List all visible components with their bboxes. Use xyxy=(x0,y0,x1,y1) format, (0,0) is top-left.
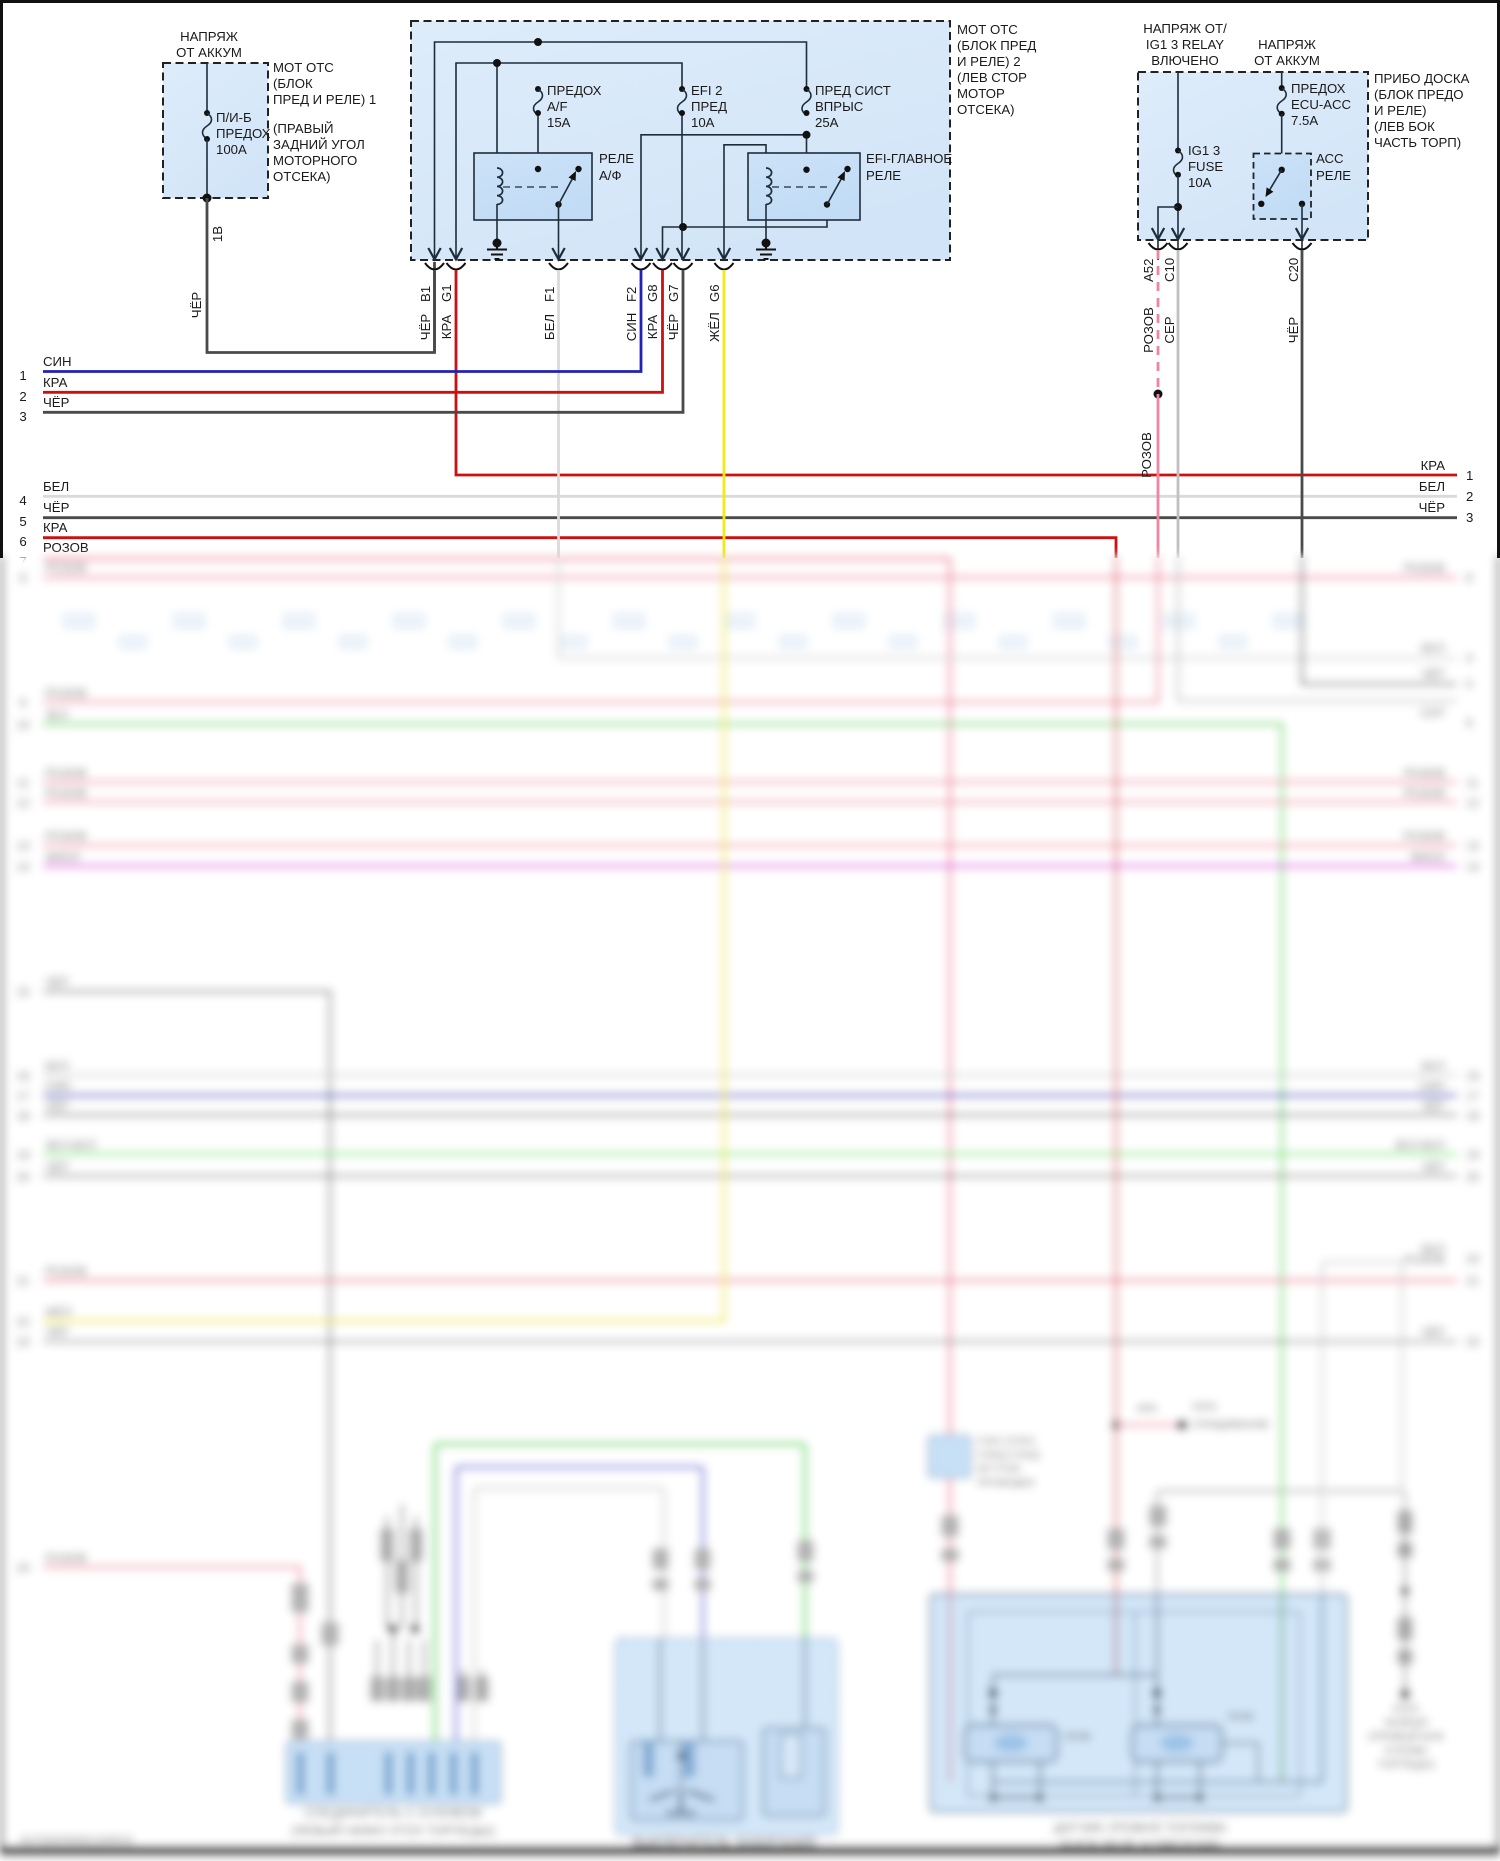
svg-text:ТОРПЕДО): ТОРПЕДО) xyxy=(1377,1759,1434,1771)
svg-text:КРА: КРА xyxy=(43,520,68,535)
svg-text:5: 5 xyxy=(1466,677,1473,691)
svg-text:23: 23 xyxy=(1466,1335,1480,1349)
svg-text:БЕЛ: БЕЛ xyxy=(1419,479,1445,494)
svg-text:10A: 10A xyxy=(1188,175,1212,190)
svg-text:НАПРЯЖ ОТ/: НАПРЯЖ ОТ/ xyxy=(1143,21,1227,36)
svg-text:НАПРЯЖ: НАПРЯЖ xyxy=(1258,37,1316,52)
svg-text:СИН: СИН xyxy=(1419,1079,1445,1093)
svg-text:РОЗОВ: РОЗОВ xyxy=(1403,561,1445,575)
svg-text:ЧАСТЬ ТОРП): ЧАСТЬ ТОРП) xyxy=(1374,135,1461,150)
svg-text:A/F: A/F xyxy=(547,99,568,114)
svg-text:ЧЁР: ЧЁР xyxy=(1419,500,1446,515)
svg-text:ОТ АККУМ: ОТ АККУМ xyxy=(1254,53,1320,68)
svg-text:12: 12 xyxy=(16,796,30,810)
svg-text:6: 6 xyxy=(1466,716,1473,730)
svg-text:(ЛЕВ БОК: (ЛЕВ БОК xyxy=(1374,119,1435,134)
svg-text:ПРЕДОХ: ПРЕДОХ xyxy=(1291,81,1346,96)
svg-text:ЧЁР: ЧЁР xyxy=(45,1325,69,1339)
svg-text:ЧЁР: ЧЁР xyxy=(189,292,204,319)
svg-text:И РЕЛЕ) 2: И РЕЛЕ) 2 xyxy=(957,54,1021,69)
svg-text:9: 9 xyxy=(20,696,27,710)
svg-text:ЗАЗЕМЛ: ЗАЗЕМЛ xyxy=(1384,1717,1428,1729)
svg-text:РОЗОВ: РОЗОВ xyxy=(43,540,89,555)
svg-text:ЖЁЛ: ЖЁЛ xyxy=(707,312,722,342)
svg-text:C10: C10 xyxy=(1162,258,1177,282)
svg-text:4: 4 xyxy=(19,493,26,508)
svg-text:IG1 3 RELAY: IG1 3 RELAY xyxy=(1146,37,1224,52)
svg-text:FUSE: FUSE xyxy=(1188,159,1223,174)
svg-text:ЗАДНИЙ УГОЛ: ЗАДНИЙ УГОЛ xyxy=(273,137,365,152)
svg-text:ПРЕД И РЕЛЕ) 1: ПРЕД И РЕЛЕ) 1 xyxy=(273,92,376,107)
svg-text:ПРЕДОХ: ПРЕДОХ xyxy=(216,126,271,141)
svg-text:14: 14 xyxy=(1466,860,1480,874)
svg-text:(БЛОК РЕЛЕ И ПРЕДОХР): (БЛОК РЕЛЕ И ПРЕДОХР) xyxy=(1060,1837,1221,1852)
svg-text:23: 23 xyxy=(16,1335,30,1349)
svg-text:A52: A52 xyxy=(1141,259,1156,282)
svg-text:РЕЛЕ: РЕЛЕ xyxy=(1228,1712,1255,1723)
svg-text:7.5A: 7.5A xyxy=(1291,113,1318,128)
svg-text:КРА: КРА xyxy=(1137,1403,1158,1415)
svg-text:1: 1 xyxy=(1466,468,1473,483)
svg-text:ЗЕЛ: ЗЕЛ xyxy=(45,708,68,722)
svg-text:ПРИБО ДОСКА: ПРИБО ДОСКА xyxy=(1374,71,1470,86)
svg-text:1: 1 xyxy=(19,368,26,383)
svg-text:ЧЁР: ЧЁР xyxy=(45,975,69,989)
svg-text:ЧЁР: ЧЁР xyxy=(1421,667,1445,681)
svg-text:ПРЕД: ПРЕД xyxy=(691,99,727,114)
svg-text:21: 21 xyxy=(16,1274,30,1288)
svg-text:КУЗОВА: КУЗОВА xyxy=(1385,1745,1428,1757)
svg-text:ЧЁР: ЧЁР xyxy=(45,1160,69,1174)
svg-text:C20: C20 xyxy=(1286,258,1301,282)
svg-text:ВЛЮЧЕНО: ВЛЮЧЕНО xyxy=(1151,53,1219,68)
svg-text:ЧЁР: ЧЁР xyxy=(1421,1160,1445,1174)
svg-text:РОЗОВ: РОЗОВ xyxy=(45,1264,87,1278)
svg-text:22: 22 xyxy=(16,1315,30,1329)
svg-text:21: 21 xyxy=(1466,1274,1480,1288)
svg-text:2: 2 xyxy=(19,389,26,404)
svg-text:РОЗОВ: РОЗОВ xyxy=(1403,786,1445,800)
svg-text:G201: G201 xyxy=(1393,1703,1420,1715)
svg-text:24: 24 xyxy=(1466,1252,1480,1266)
svg-text:18: 18 xyxy=(1466,1109,1480,1123)
svg-text:ОТСЕКА): ОТСЕКА) xyxy=(957,102,1015,117)
svg-text:8: 8 xyxy=(20,571,27,585)
svg-text:А/Ф: А/Ф xyxy=(599,168,622,183)
svg-text:БЕЛ: БЕЛ xyxy=(45,1059,69,1073)
svg-text:ЧЁР: ЧЁР xyxy=(1421,1325,1445,1339)
svg-text:1B: 1B xyxy=(210,226,225,242)
svg-text:ВЫКЛЮЧАТЕЛЬ ЗАЖИГАНИЯ: ВЫКЛЮЧАТЕЛЬ ЗАЖИГАНИЯ xyxy=(632,1834,815,1849)
svg-text:РОЗОВ: РОЗОВ xyxy=(45,1551,87,1565)
svg-text:G7: G7 xyxy=(666,284,681,302)
svg-text:ДАТЧИК УРОВНЯ ТОПЛИВА: ДАТЧИК УРОВНЯ ТОПЛИВА xyxy=(1053,1820,1226,1835)
svg-text:19: 19 xyxy=(1466,1148,1480,1162)
svg-text:(БЛОК: (БЛОК xyxy=(273,76,313,91)
svg-text:РОЗОВ: РОЗОВ xyxy=(1139,432,1154,478)
svg-text:16: 16 xyxy=(16,1069,30,1083)
svg-text:F1: F1 xyxy=(542,287,557,302)
svg-text:РОЗОВ: РОЗОВ xyxy=(45,561,87,575)
svg-text:МОТ ОТС: МОТ ОТС xyxy=(957,22,1018,37)
svg-text:РЕЛЕ: РЕЛЕ xyxy=(866,168,901,183)
svg-text:ЖГУТОВ: ЖГУТОВ xyxy=(977,1463,1020,1475)
svg-text:ЗЕЛ-БЕЛ: ЗЕЛ-БЕЛ xyxy=(1394,1138,1445,1152)
svg-text:РОЗОВ: РОЗОВ xyxy=(1141,307,1156,353)
svg-text:2: 2 xyxy=(1466,489,1473,504)
svg-text:3: 3 xyxy=(19,409,26,424)
svg-text:11: 11 xyxy=(17,776,30,790)
svg-text:НАПРЯЖ: НАПРЯЖ xyxy=(180,29,238,44)
svg-text:КРА: КРА xyxy=(439,315,454,340)
svg-text:БЕЛ: БЕЛ xyxy=(1421,1242,1445,1256)
svg-text:ЧЁР: ЧЁР xyxy=(43,395,70,410)
svg-text:ОТ АККУМ: ОТ АККУМ xyxy=(176,45,242,60)
svg-text:20: 20 xyxy=(1466,1170,1480,1184)
svg-text:РЕЛЕ: РЕЛЕ xyxy=(1065,1732,1092,1743)
svg-text:18: 18 xyxy=(16,1109,30,1123)
svg-text:КРА: КРА xyxy=(1421,458,1446,473)
svg-text:20: 20 xyxy=(16,1170,30,1184)
svg-text:ЧЁР: ЧЁР xyxy=(43,500,70,515)
svg-text:15A: 15A xyxy=(547,115,571,130)
svg-text:G1: G1 xyxy=(439,284,454,302)
svg-text:10: 10 xyxy=(16,718,30,732)
svg-text:БЕЛ: БЕЛ xyxy=(43,479,69,494)
svg-text:РОЗОВ: РОЗОВ xyxy=(45,829,87,843)
svg-text:14: 14 xyxy=(16,860,30,874)
svg-text:10A: 10A xyxy=(691,115,715,130)
svg-text:ПРЕД СИСТ: ПРЕД СИСТ xyxy=(815,83,891,98)
svg-text:100А: 100А xyxy=(216,142,247,157)
svg-text:РОЗОВ: РОЗОВ xyxy=(45,766,87,780)
svg-text:КРА: КРА xyxy=(645,315,660,340)
svg-text:11: 11 xyxy=(1466,776,1479,790)
svg-text:3: 3 xyxy=(1466,510,1473,525)
svg-text:БЕЛ: БЕЛ xyxy=(542,314,557,340)
svg-text:СИН: СИН xyxy=(624,313,639,342)
svg-text:AUTODATA0001234RUS: AUTODATA0001234RUS xyxy=(20,1835,133,1846)
svg-text:IG1 3: IG1 3 xyxy=(1188,143,1220,158)
svg-text:(ЛЕВЫЙ НИЖН УГОЛ ТОРПЕДЫ): (ЛЕВЫЙ НИЖН УГОЛ ТОРПЕДЫ) xyxy=(291,1823,495,1838)
svg-text:КРА: КРА xyxy=(43,375,68,390)
svg-text:ЧЁР: ЧЁР xyxy=(666,314,681,341)
svg-text:СИН: СИН xyxy=(45,1079,71,1093)
svg-text:МОТОР: МОТОР xyxy=(957,86,1005,101)
svg-text:(ПРАВЫЙ БОК: (ПРАВЫЙ БОК xyxy=(1368,1730,1444,1743)
svg-text:ECU-ACC: ECU-ACC xyxy=(1291,97,1352,112)
svg-text:5: 5 xyxy=(19,514,26,529)
svg-text:ЖЁЛ: ЖЁЛ xyxy=(45,1305,72,1319)
svg-text:АСС: АСС xyxy=(1316,151,1344,166)
svg-text:(БЛОК ПРЕДО: (БЛОК ПРЕДО xyxy=(1374,87,1464,102)
svg-text:БЕЛ: БЕЛ xyxy=(1421,641,1445,655)
svg-text:ЧЁР: ЧЁР xyxy=(418,314,433,341)
svg-text:S201: S201 xyxy=(1192,1401,1218,1413)
svg-text:ФИОЛ: ФИОЛ xyxy=(1410,850,1445,864)
svg-text:СОЕДИНИТЕЛЬ С КУЗОВОМ: СОЕДИНИТЕЛЬ С КУЗОВОМ xyxy=(304,1805,482,1820)
svg-text:МОТОРНОГО: МОТОРНОГО xyxy=(273,153,357,168)
svg-text:ЧЁР: ЧЁР xyxy=(45,1099,69,1113)
svg-text:РОЗОВ: РОЗОВ xyxy=(1403,766,1445,780)
svg-text:G6: G6 xyxy=(707,284,722,302)
svg-text:И РЕЛЕ): И РЕЛЕ) xyxy=(1374,103,1427,118)
svg-text:19: 19 xyxy=(16,1148,30,1162)
svg-text:17: 17 xyxy=(1466,1089,1480,1103)
svg-text:СОЕД СОЕД: СОЕД СОЕД xyxy=(977,1449,1039,1461)
svg-text:15: 15 xyxy=(16,985,30,999)
svg-text:8: 8 xyxy=(1466,571,1473,585)
svg-text:БЕЛ: БЕЛ xyxy=(1421,1059,1445,1073)
svg-text:16: 16 xyxy=(1466,1069,1480,1083)
svg-text:РОЗОВ: РОЗОВ xyxy=(45,686,87,700)
svg-text:4: 4 xyxy=(1466,651,1473,665)
svg-text:17: 17 xyxy=(16,1089,30,1103)
svg-text:EFI-ГЛАВНОЕ: EFI-ГЛАВНОЕ xyxy=(866,151,952,166)
svg-text:СЕР: СЕР xyxy=(1162,316,1177,343)
svg-text:13: 13 xyxy=(16,839,30,853)
svg-text:ФИОЛ: ФИОЛ xyxy=(45,850,80,864)
svg-text:ПРЕДОХ: ПРЕДОХ xyxy=(547,83,602,98)
svg-text:РЕЛЕ: РЕЛЕ xyxy=(599,151,634,166)
svg-text:П/И-Б: П/И-Б xyxy=(216,110,252,125)
svg-text:25А: 25А xyxy=(815,115,839,130)
svg-text:РОЗОВ: РОЗОВ xyxy=(45,786,87,800)
svg-text:СЕР: СЕР xyxy=(1420,706,1445,720)
svg-text:EFI 2: EFI 2 xyxy=(691,83,723,98)
svg-text:ЧЁР: ЧЁР xyxy=(1286,317,1301,344)
svg-text:24: 24 xyxy=(16,1561,30,1575)
svg-text:(ПРАВЫЙ: (ПРАВЫЙ xyxy=(273,121,334,136)
svg-text:ЗЕЛ-БЕЛ: ЗЕЛ-БЕЛ xyxy=(45,1138,96,1152)
svg-text:F2: F2 xyxy=(624,287,639,302)
svg-text:G8: G8 xyxy=(645,284,660,302)
svg-text:6: 6 xyxy=(19,534,26,549)
svg-text:(ЛЕВ СТОР: (ЛЕВ СТОР xyxy=(957,70,1027,85)
svg-text:РЕЛЕ: РЕЛЕ xyxy=(1316,168,1351,183)
svg-text:ПРОВОДКИ: ПРОВОДКИ xyxy=(977,1477,1035,1489)
svg-text:B1: B1 xyxy=(418,286,433,302)
svg-text:РОЗОВ: РОЗОВ xyxy=(1403,829,1445,843)
svg-text:СРАЩИВАНИЕ: СРАЩИВАНИЕ xyxy=(1192,1419,1270,1431)
svg-text:СИН: СИН xyxy=(43,354,72,369)
svg-text:ЧЁР: ЧЁР xyxy=(1421,1099,1445,1113)
svg-text:МОТ ОТС: МОТ ОТС xyxy=(273,60,334,75)
svg-text:13: 13 xyxy=(1466,839,1480,853)
svg-text:ОТСЕКА): ОТСЕКА) xyxy=(273,169,331,184)
svg-text:ВПРЫС: ВПРЫС xyxy=(815,99,864,114)
svg-text:(БЛОК ПРЕД: (БЛОК ПРЕД xyxy=(957,38,1036,53)
svg-text:12: 12 xyxy=(1466,796,1480,810)
svg-text:С201 (СИН): С201 (СИН) xyxy=(977,1435,1035,1447)
